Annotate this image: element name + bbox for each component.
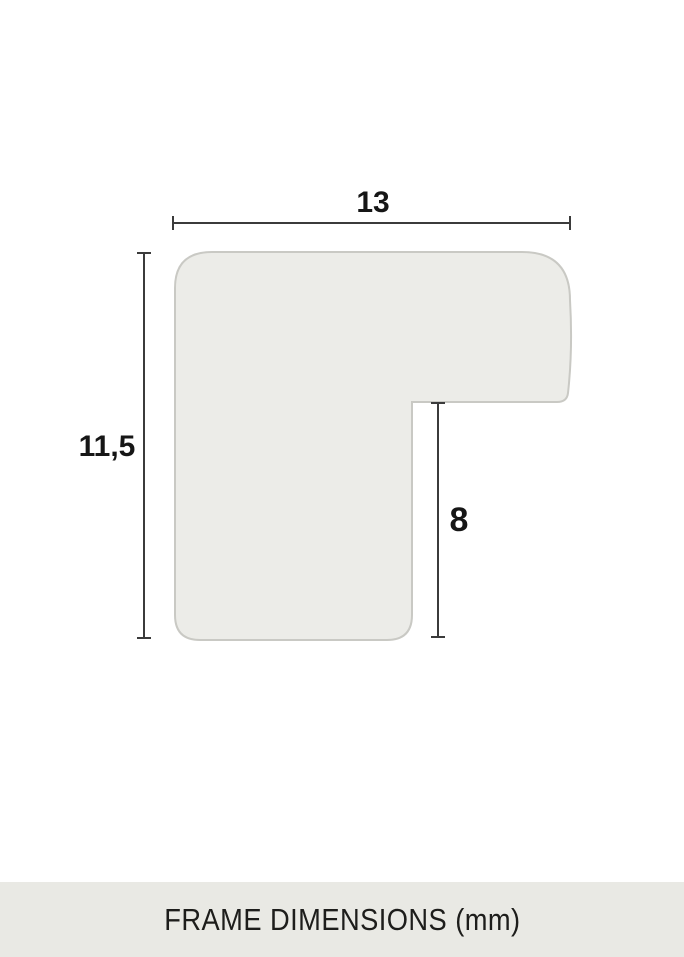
screenshot-root: 13 11,5 8 FRAME DIMENSIONS (mm) [0, 0, 684, 957]
frame-profile-diagram: 13 11,5 8 [0, 0, 684, 880]
height-dimension-label: 11,5 [79, 430, 136, 463]
footer-title: FRAME DIMENSIONS (mm) [164, 902, 520, 938]
inner-height-dimension: 8 [431, 403, 468, 637]
footer-bar: FRAME DIMENSIONS (mm) [0, 882, 684, 957]
width-dimension-label: 13 [356, 186, 389, 219]
inner-height-dimension-label: 8 [450, 501, 469, 539]
width-dimension: 13 [173, 186, 570, 230]
frame-profile-shape [175, 252, 571, 640]
height-dimension: 11,5 [79, 253, 151, 638]
